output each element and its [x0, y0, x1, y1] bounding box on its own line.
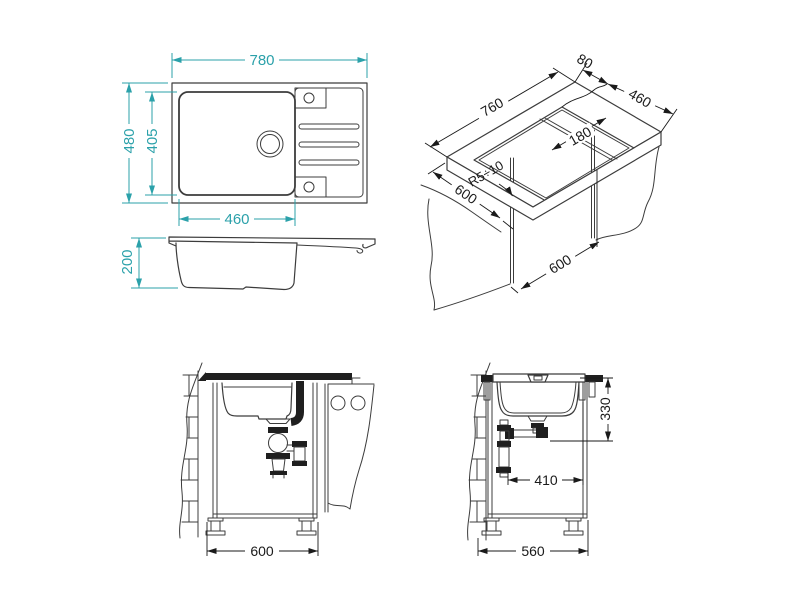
wall-break-line [468, 363, 490, 540]
siphon-nut [496, 467, 511, 473]
cabinet-foot [206, 518, 225, 535]
trap-feet [273, 475, 284, 478]
dim-bowl-height: 200 [119, 249, 136, 274]
siphon-nut [497, 441, 511, 447]
countertop-section [206, 373, 352, 380]
sink-section [222, 383, 292, 419]
drainer-area [295, 88, 363, 197]
siphon-cap [500, 420, 508, 425]
fixing-clip [579, 382, 585, 400]
overflow-notch [528, 375, 548, 382]
break-line [434, 284, 510, 310]
drainer-underside [297, 245, 363, 253]
dim-overall-depth: 480 [121, 128, 138, 153]
tap-notch-top [295, 88, 326, 108]
bowl-section [176, 243, 297, 290]
outlet-pipe [294, 447, 305, 461]
siphon-end [500, 473, 508, 477]
siphon-body [499, 447, 509, 467]
trap-nut [266, 453, 290, 459]
tap-hole-top [304, 93, 314, 103]
dim-trap-height: 330 [597, 397, 613, 421]
drip-edge-right [363, 239, 375, 248]
dim-overall-width: 780 [249, 52, 274, 69]
siphon-trap [266, 419, 307, 478]
wall-siphon [496, 420, 548, 477]
trap-base [270, 471, 287, 475]
drain-hole-inner [261, 135, 280, 154]
panel-hole [351, 396, 365, 410]
base-cabinet [482, 382, 587, 535]
fixing-clip [589, 382, 595, 397]
dim-line-offset [583, 70, 608, 84]
counter-profile [169, 237, 375, 246]
siphon-nut [497, 425, 511, 431]
top-view: 780 480 405 460 [121, 52, 367, 228]
sink-outline-top [172, 83, 367, 203]
trap-bowl [269, 434, 288, 453]
drainer-groove [299, 142, 359, 147]
wall-section [468, 363, 490, 540]
side-section-view: 200 [119, 237, 375, 290]
side-panel [325, 378, 374, 512]
outlet-nut [292, 441, 307, 447]
install-front-view: 600 [180, 363, 374, 559]
bowl-inner-line [500, 382, 576, 413]
dim-cabinet-width-side: 560 [521, 543, 545, 559]
wall-section [180, 363, 206, 538]
sink-bowl-top [179, 92, 295, 195]
ext-lines-height [131, 238, 178, 288]
pipe-nut [536, 427, 548, 438]
drainer-groove [299, 160, 359, 165]
dim-cabinet-width-front: 600 [250, 543, 274, 559]
cabinet-foot [297, 518, 316, 535]
cabinet-foot [482, 518, 501, 535]
wall-wedge [198, 372, 206, 381]
dim-rear-offset: 80 [574, 50, 596, 72]
panel-hole [331, 396, 345, 410]
outlet-nut [292, 461, 307, 466]
tap-notch-bottom [295, 177, 326, 197]
trap-nut [268, 427, 288, 433]
dim-bowl-depth: 405 [144, 128, 161, 153]
install-side-view: 330 410 560 [468, 363, 613, 559]
drain-flange [528, 416, 547, 421]
dim-bowl-length: 460 [224, 211, 249, 228]
cabinet-foot [564, 518, 583, 535]
tap-hole-bottom [304, 182, 314, 192]
cutout-isometric-view: 760 80 460 180 R5÷10 600 600 [421, 50, 677, 310]
drawing-canvas: 780 480 405 460 200 760 80 460 180 [0, 0, 800, 600]
trap-body [272, 459, 285, 471]
bowl-profile [222, 383, 292, 419]
drain-flange [266, 419, 290, 424]
sink-technical-drawing: 780 480 405 460 200 760 80 460 180 [0, 0, 800, 600]
dim-trap-offset: 410 [534, 472, 558, 488]
fixing-clip [484, 382, 490, 400]
drainer-groove [299, 124, 359, 129]
break-line [428, 199, 435, 310]
wall-break-line [180, 363, 202, 538]
bowl-profile [497, 382, 579, 416]
